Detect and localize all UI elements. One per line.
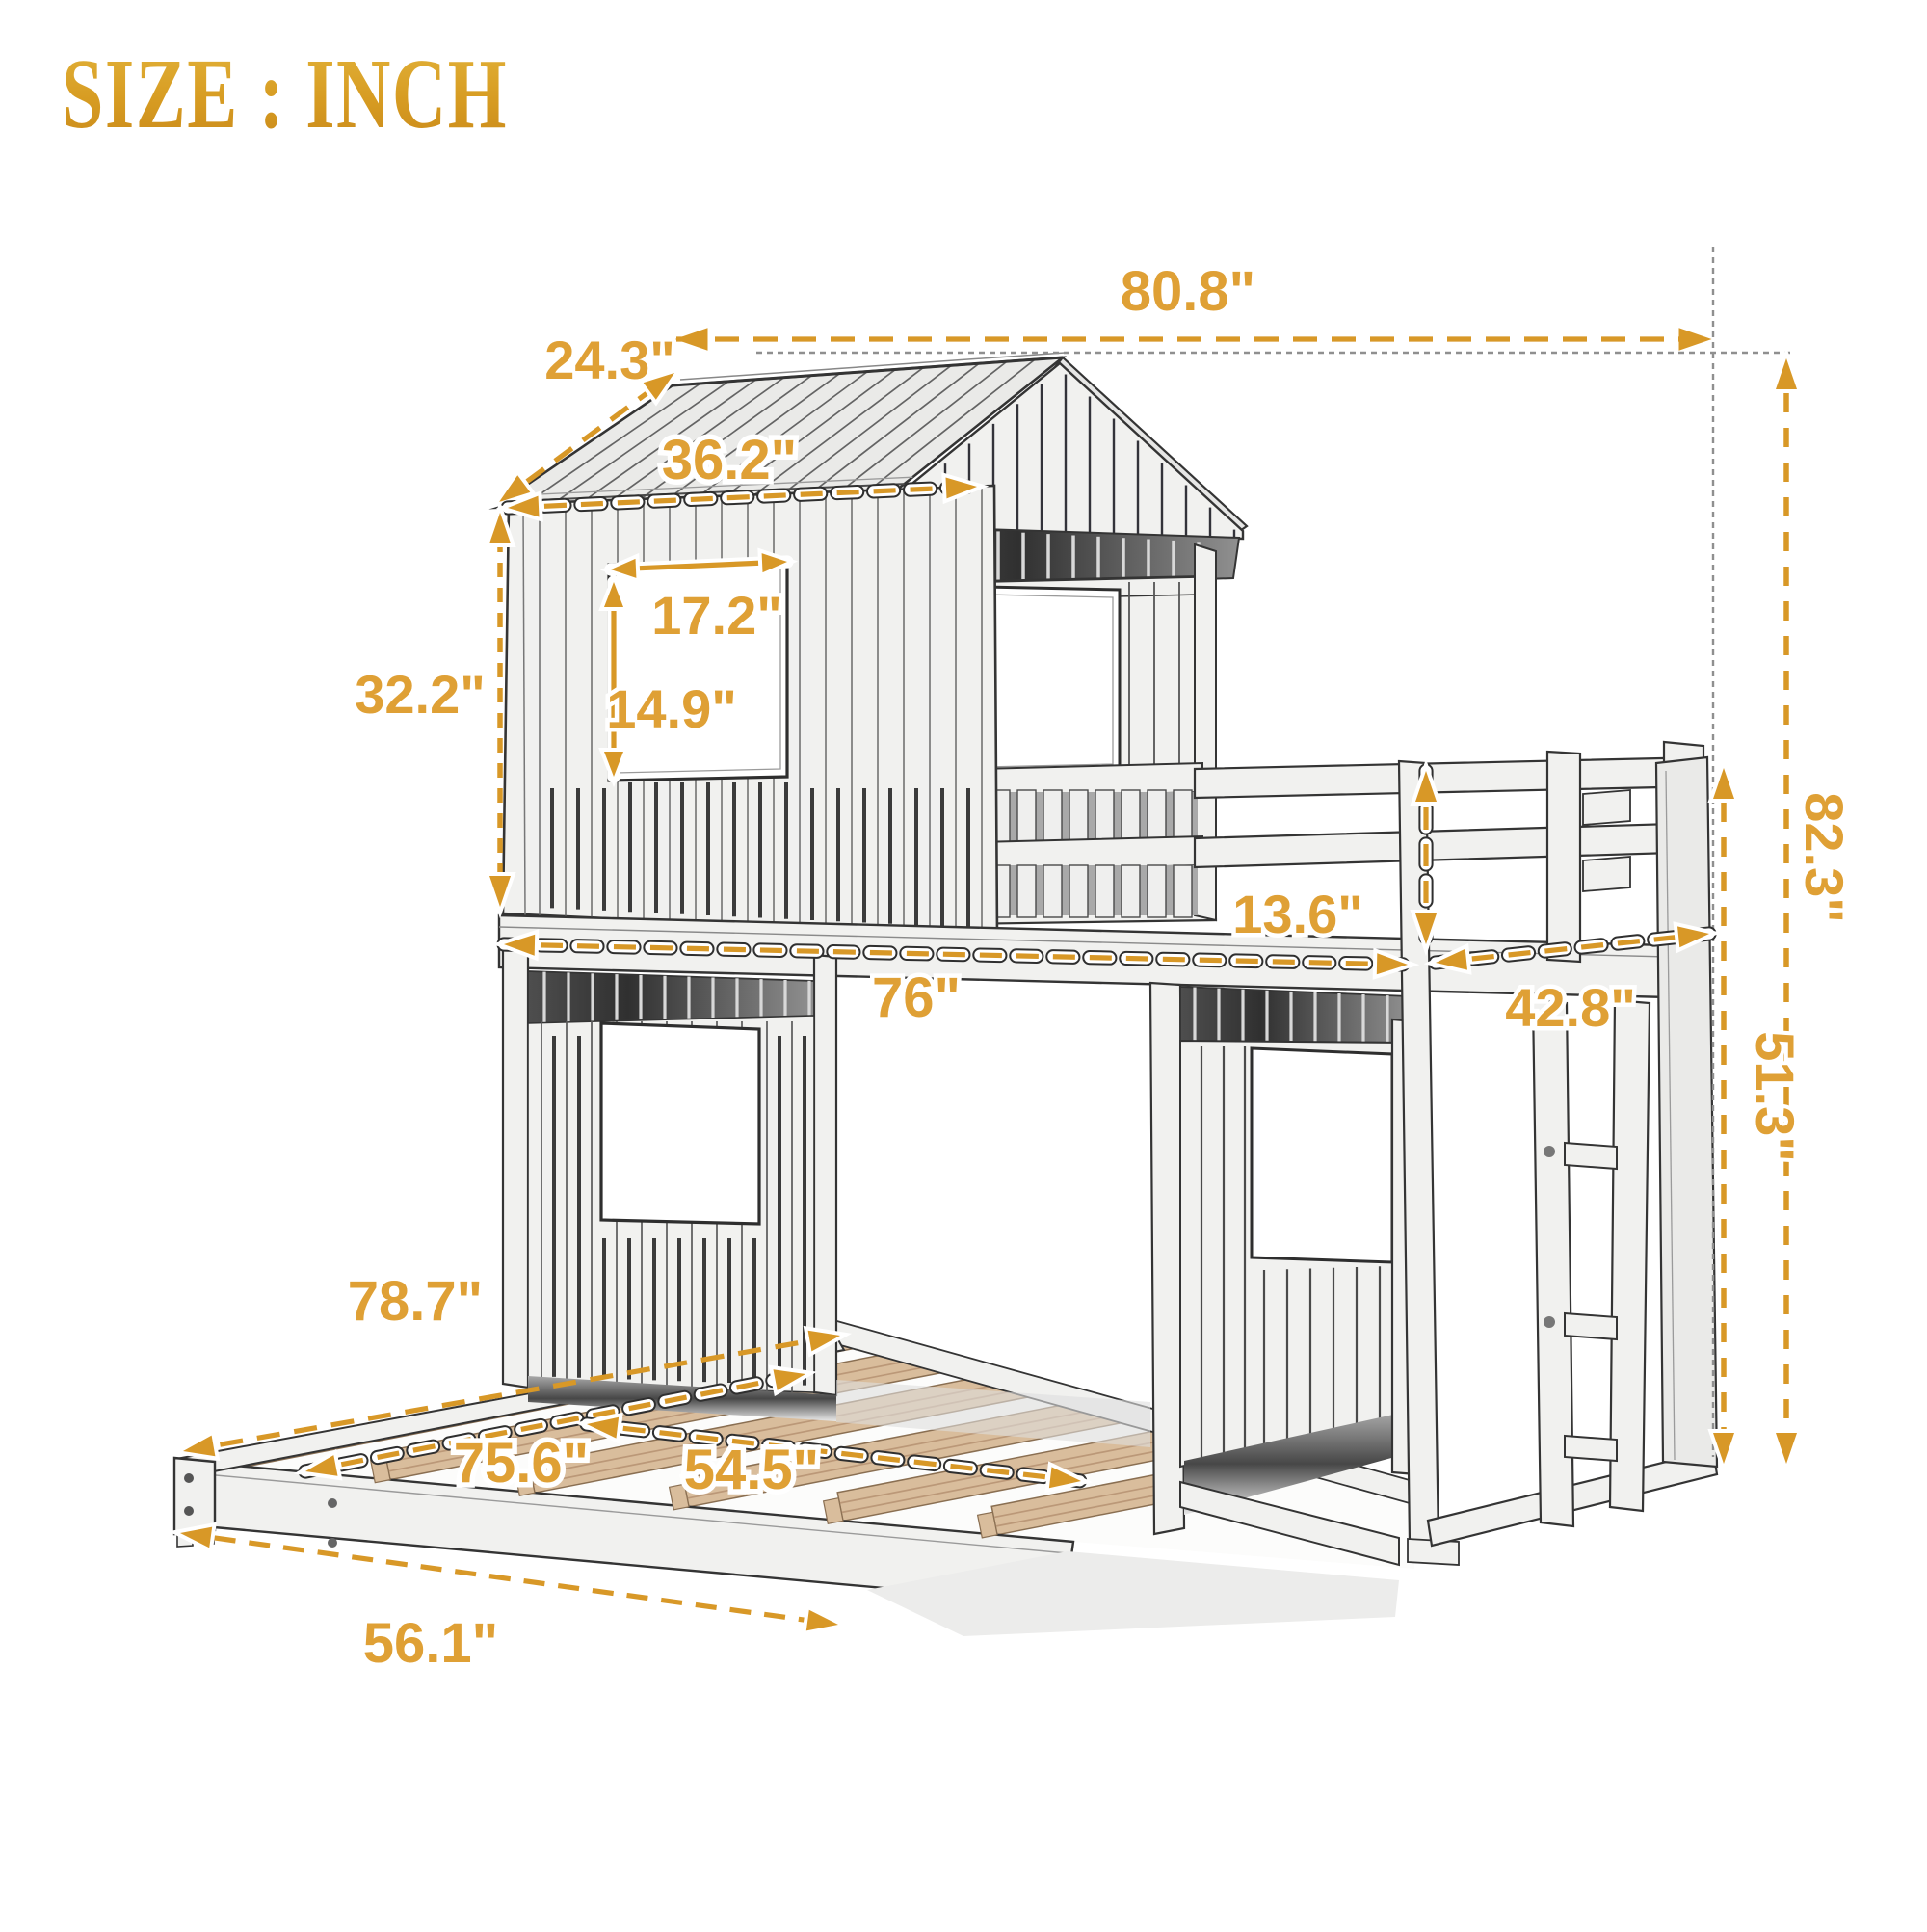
- svg-text:78.7": 78.7": [348, 1270, 483, 1333]
- svg-text:42.8": 42.8": [1505, 977, 1636, 1038]
- svg-text:14.9": 14.9": [606, 678, 737, 739]
- svg-text:76": 76": [872, 966, 961, 1029]
- svg-text:56.1": 56.1": [363, 1612, 498, 1675]
- svg-text:13.6": 13.6": [1232, 884, 1363, 944]
- svg-text:51.3": 51.3": [1745, 1031, 1806, 1162]
- svg-text:32.2": 32.2": [355, 664, 486, 725]
- svg-text:82.3": 82.3": [1794, 792, 1855, 923]
- svg-text:17.2": 17.2": [651, 585, 782, 646]
- svg-text:80.8": 80.8": [1121, 260, 1255, 323]
- svg-text:36.2": 36.2": [662, 429, 797, 491]
- svg-text:75.6": 75.6": [454, 1432, 589, 1495]
- svg-text:54.5": 54.5": [684, 1439, 819, 1501]
- svg-text:24.3": 24.3": [544, 330, 675, 390]
- svg-text:SIZE : INCH: SIZE : INCH: [62, 38, 508, 148]
